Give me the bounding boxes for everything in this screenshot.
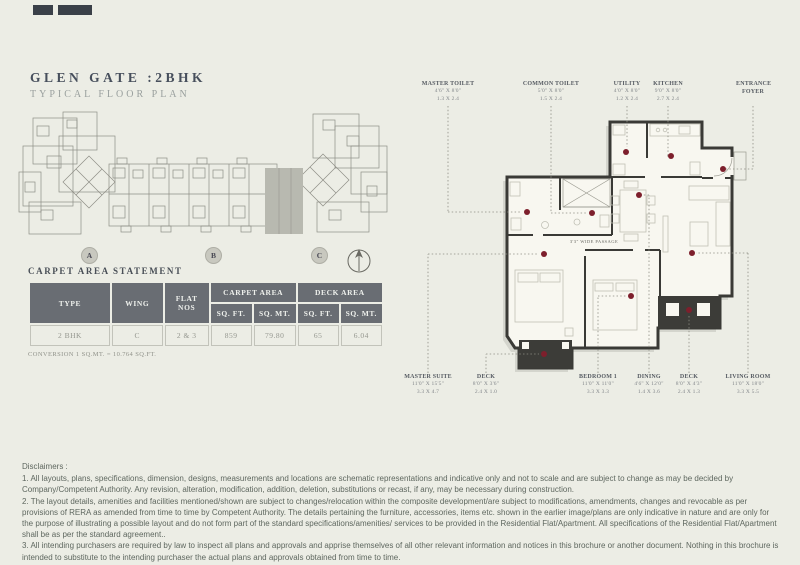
- cell-deck-sqft: 65: [298, 325, 339, 346]
- wing-marker-b: B: [205, 247, 222, 264]
- col-header-type: TYPE: [30, 283, 110, 323]
- col-header-carpet-sqft: SQ. FT.: [211, 304, 252, 323]
- key-plan-highlighted-unit: [265, 168, 303, 234]
- cell-carpet-sqft: 859: [211, 325, 252, 346]
- washer-icon: [666, 303, 679, 316]
- disclaimer-item-1: 1. All layouts, plans, specifications, d…: [22, 473, 780, 495]
- room-marker-dot: [636, 192, 642, 198]
- wing-marker-c: C: [311, 247, 328, 264]
- col-header-carpet-area: CARPET AREA: [211, 283, 296, 302]
- disclaimer-item-2: 2. The layout details, amenities and fac…: [22, 496, 780, 541]
- col-header-wing: WING: [112, 283, 163, 323]
- carpet-area-section: CARPET AREA STATEMENT TYPE WING FLAT NOS…: [28, 266, 386, 358]
- col-header-carpet-sqmt: SQ. MT.: [254, 304, 296, 323]
- disclaimers-section: Disclaimers : 1. All layouts, plans, spe…: [22, 461, 780, 563]
- cell-deck-sqmt: 6.04: [341, 325, 382, 346]
- room-marker-dot: [686, 307, 692, 313]
- wing-marker-a: A: [81, 247, 98, 264]
- brochure-page: GLEN GATE :2BHK TYPICAL FLOOR PLAN: [0, 0, 800, 565]
- cell-type: 2 BHK: [30, 325, 110, 346]
- cell-carpet-sqmt: 79.80: [254, 325, 296, 346]
- key-plan-schematic: [17, 106, 389, 256]
- room-marker-dot: [623, 149, 629, 155]
- disclaimer-item-3: 3. All intending purchasers are required…: [22, 540, 780, 562]
- logo-mark-icon: [58, 5, 92, 15]
- carpet-area-heading: CARPET AREA STATEMENT: [28, 266, 386, 276]
- table-row: 2 BHK C 2 & 3 859 79.80 65 6.04: [30, 325, 382, 346]
- brand-logo: [33, 5, 92, 15]
- room-marker-dot: [720, 166, 726, 172]
- logo-mark-icon: [33, 5, 53, 15]
- room-marker-dot: [541, 351, 547, 357]
- conversion-note: CONVERSION 1 SQ.MT. = 10.764 SQ.FT.: [28, 351, 386, 358]
- room-marker-dot: [589, 210, 595, 216]
- washer-icon: [697, 303, 710, 316]
- room-marker-dot: [524, 209, 530, 215]
- cell-flat-nos: 2 & 3: [165, 325, 209, 346]
- header: GLEN GATE :2BHK TYPICAL FLOOR PLAN: [30, 70, 206, 100]
- cell-wing: C: [112, 325, 163, 346]
- passage-label: 3'3" WIDE PASSAGE: [570, 239, 618, 244]
- room-marker-dot: [541, 251, 547, 257]
- col-header-deck-sqmt: SQ. MT.: [341, 304, 382, 323]
- page-title: GLEN GATE :2BHK: [30, 70, 206, 86]
- col-header-flat-nos: FLAT NOS: [165, 283, 209, 323]
- col-header-deck-sqft: SQ. FT.: [298, 304, 339, 323]
- room-marker-dot: [628, 293, 634, 299]
- col-header-deck-area: DECK AREA: [298, 283, 382, 302]
- room-marker-dot: [668, 153, 674, 159]
- room-marker-dot: [689, 250, 695, 256]
- page-subtitle: TYPICAL FLOOR PLAN: [30, 89, 206, 100]
- disclaimers-heading: Disclaimers :: [22, 461, 780, 472]
- floor-plan-drawing: 3'3" WIDE PASSAGE: [395, 70, 795, 415]
- key-plan-linework: [19, 112, 387, 234]
- carpet-area-table: TYPE WING FLAT NOS CARPET AREA DECK AREA…: [28, 281, 384, 348]
